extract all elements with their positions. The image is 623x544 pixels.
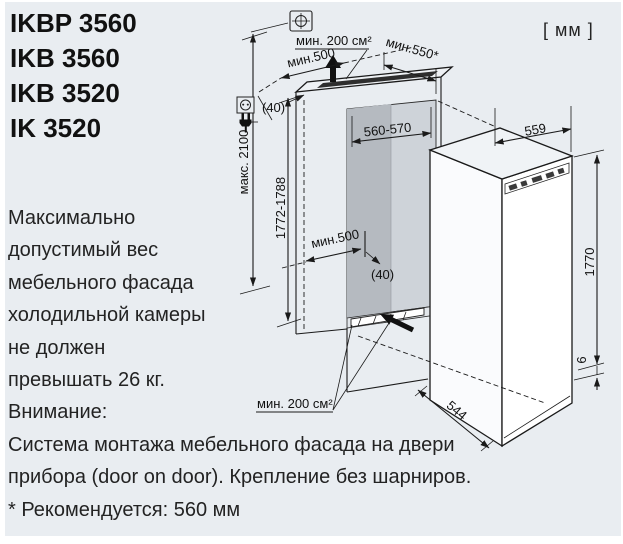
dim-appliance-height: 1770 bbox=[574, 150, 604, 370]
appliance bbox=[430, 128, 572, 446]
dim-bottom-clearance: 6 bbox=[574, 356, 604, 390]
installation-diagram: макс. 2100 1772-1788 мин. 200 см² мин.50… bbox=[0, 0, 623, 544]
max-socket-height-label: макс. 2100 bbox=[236, 130, 251, 195]
appliance-height-label: 1770 bbox=[582, 248, 597, 277]
socket-icon bbox=[237, 97, 254, 113]
niche-height-label: 1772-1788 bbox=[273, 177, 288, 239]
plug-icon bbox=[240, 114, 259, 133]
dim-niche-height: 1772-1788 bbox=[273, 96, 301, 327]
gap-top-label: (40) bbox=[262, 100, 285, 115]
vent-area-bottom-label: мин. 200 см² bbox=[257, 396, 333, 411]
junction-box-icon bbox=[290, 11, 312, 31]
dim-gap-top: (40) bbox=[258, 95, 304, 120]
appliance-left-side bbox=[430, 150, 502, 446]
niche-cabinet bbox=[296, 67, 452, 392]
gap-bottom-label: (40) bbox=[371, 267, 394, 282]
dim-vent-area-bottom: мин. 200 см² bbox=[256, 320, 391, 412]
appliance-width-label: 559 bbox=[523, 120, 547, 139]
installation-sheet: IKBP 3560 IKB 3560 IKB 3520 IK 3520 [ мм… bbox=[0, 0, 623, 544]
appliance-front bbox=[502, 156, 572, 446]
vent-area-top-label: мин. 200 см² bbox=[296, 33, 372, 48]
dim-niche-depth-recommended: мин.550* bbox=[384, 34, 440, 94]
bottom-clearance-label: 6 bbox=[574, 356, 589, 363]
niche-depth-recommended-label: мин.550* bbox=[384, 34, 440, 63]
